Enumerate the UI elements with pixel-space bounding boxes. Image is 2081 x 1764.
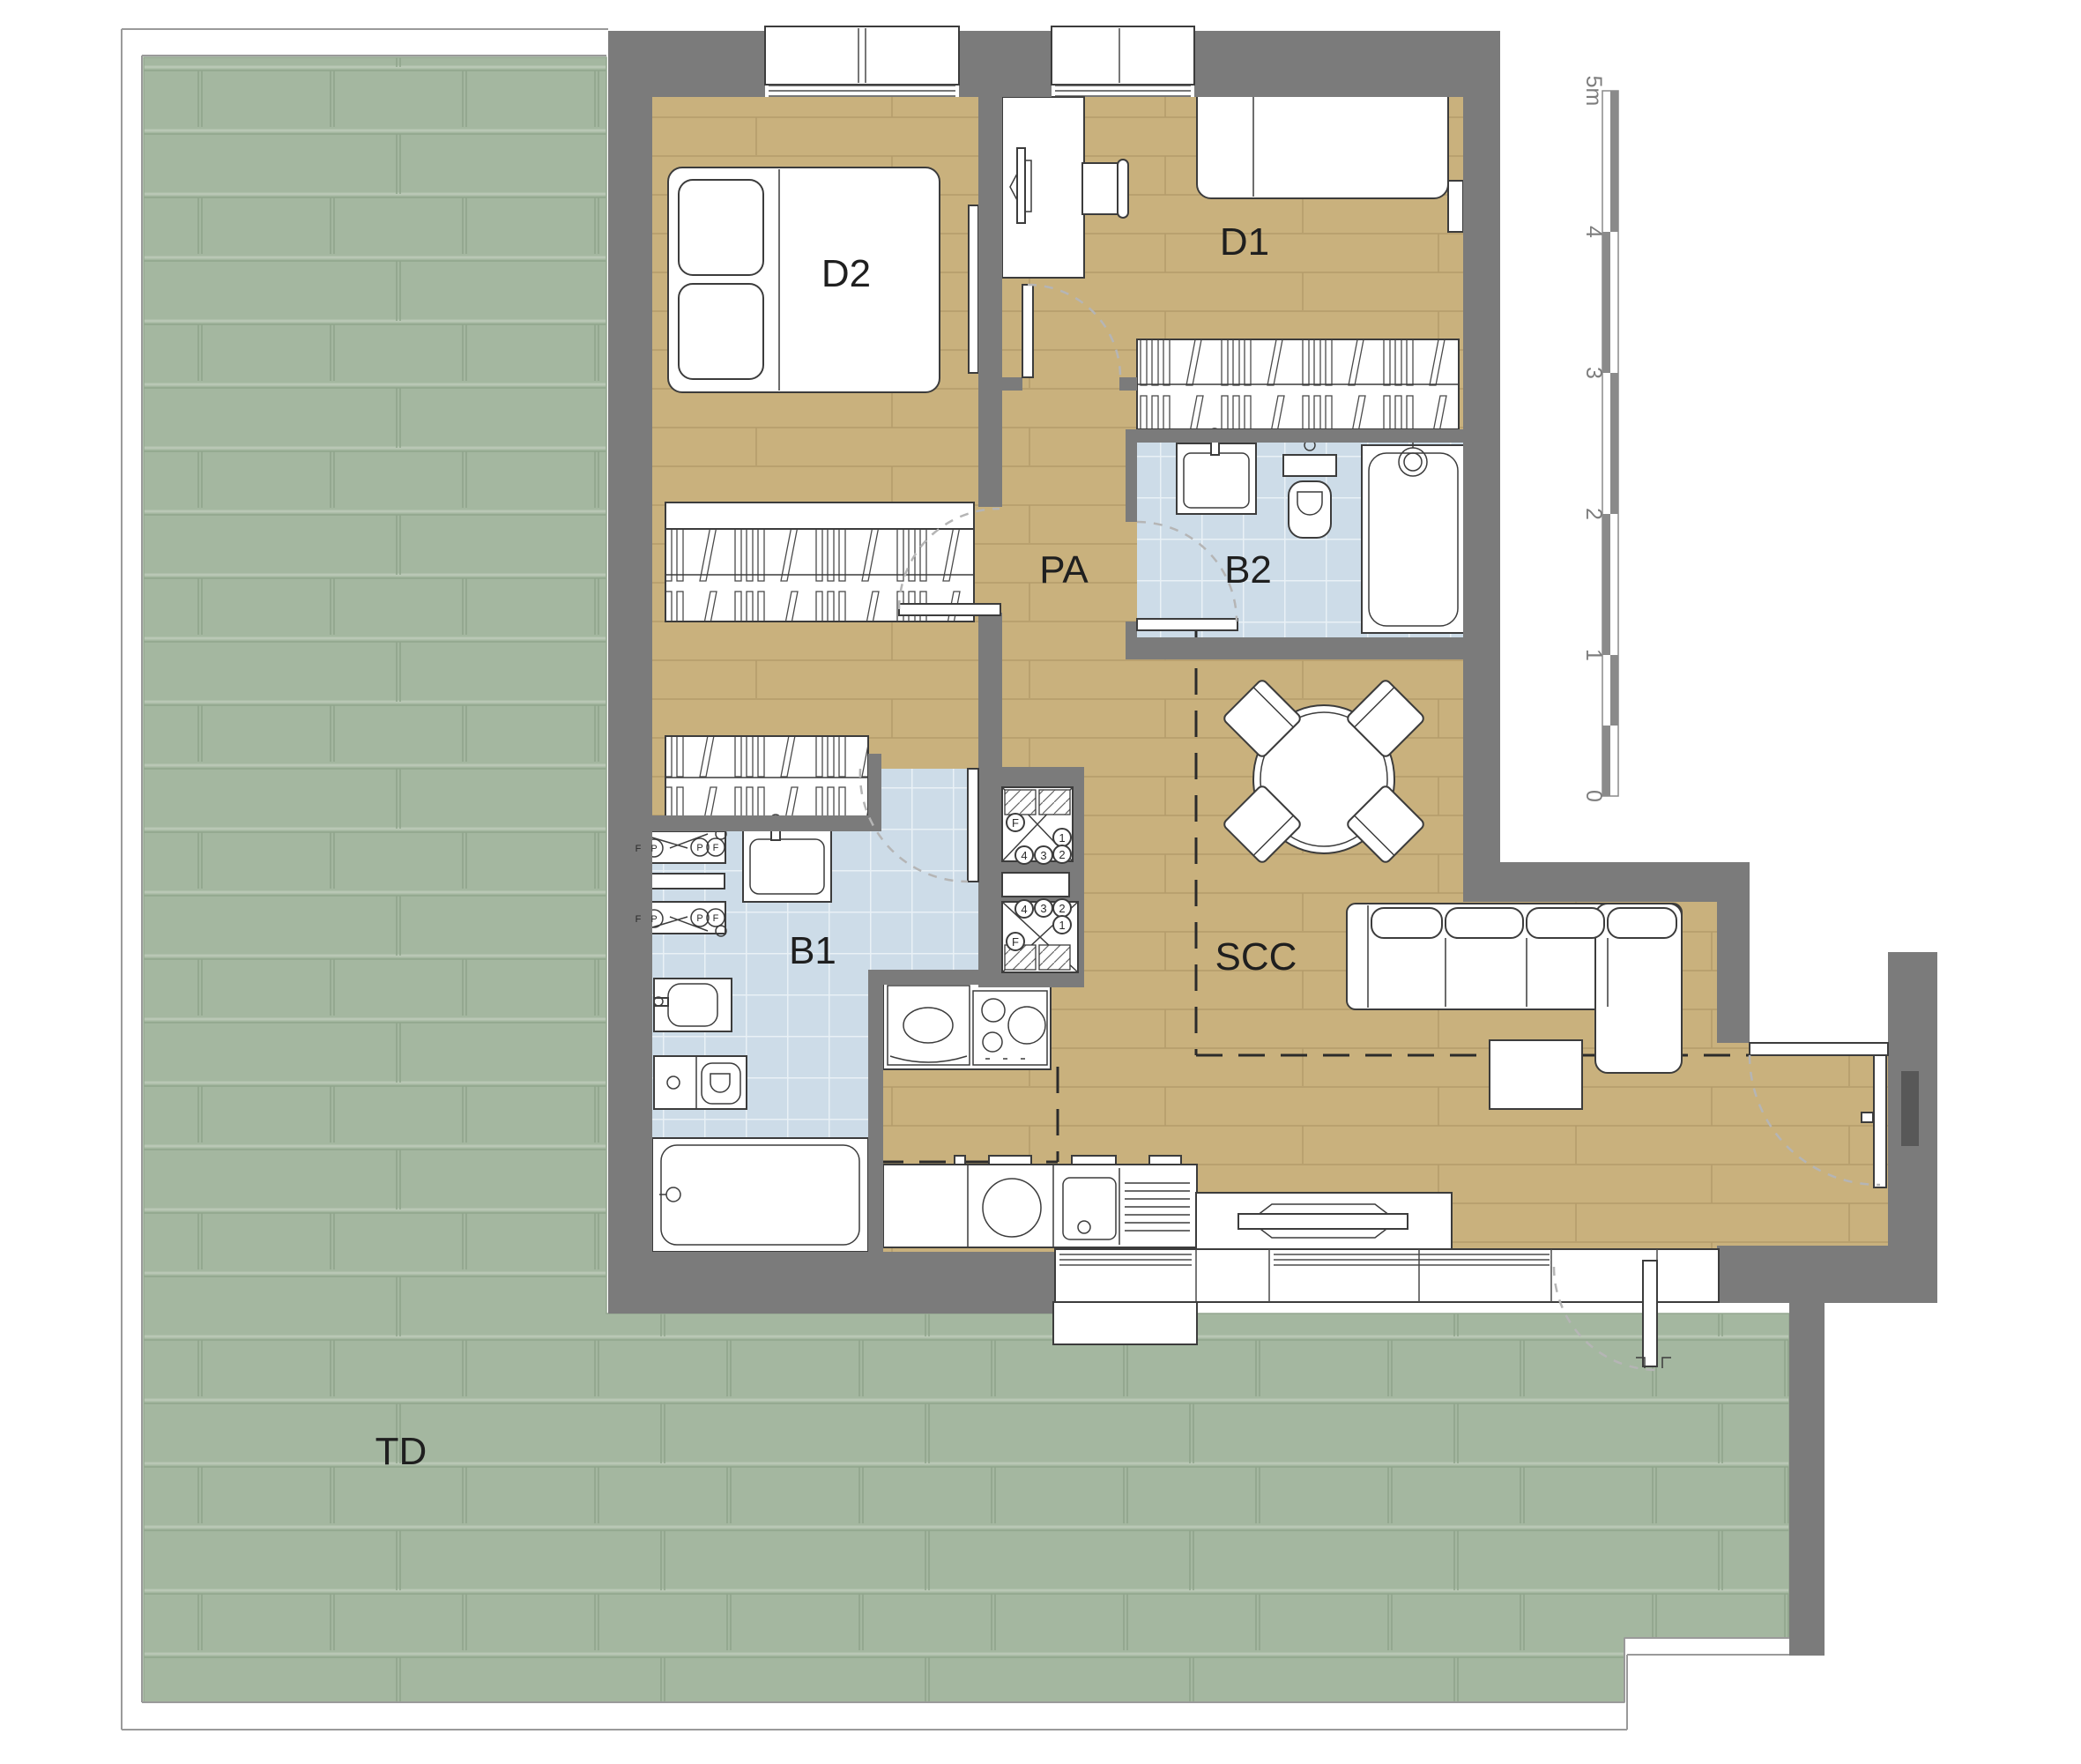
kitchen-counter-row (883, 1165, 1197, 1247)
laundry-shelf (650, 874, 725, 889)
wall-d1-south-right (1119, 377, 1137, 391)
svg-text:F: F (1012, 935, 1019, 949)
svg-text:4: 4 (1021, 903, 1027, 916)
cabinet-handle (1072, 1156, 1116, 1165)
svg-text:0: 0 (1581, 790, 1606, 802)
wall-divider-upper (978, 97, 1002, 507)
door-leaf-b2 (1137, 619, 1237, 630)
svg-text:3: 3 (1040, 849, 1046, 862)
bathtub-b1 (652, 1138, 868, 1252)
bathtub-b2 (1362, 445, 1465, 633)
svg-text:1: 1 (1059, 831, 1065, 845)
svg-text:1: 1 (1059, 919, 1065, 932)
wall-entry-south (1717, 1246, 1937, 1303)
wall-b1-east (868, 985, 883, 1252)
wall-top-right (1194, 31, 1500, 97)
wall-entry-west (1717, 902, 1750, 1043)
cabinet-handle (955, 1156, 965, 1165)
svg-text:F: F (713, 913, 719, 924)
shaft-shelf (1002, 873, 1069, 897)
wall-b2-west-upper (1126, 429, 1137, 522)
wall-b2-north (1126, 429, 1500, 443)
b2-toilet-cistern (1283, 455, 1336, 476)
b2-toilet-bowl (1289, 481, 1331, 538)
label-td: TD (375, 1430, 427, 1473)
single-bed (1197, 84, 1448, 198)
door-leaf-d2 (899, 604, 1000, 615)
wall-b2-west-lower (1126, 621, 1137, 637)
scale-bar: 5m 4 3 2 1 0 (1581, 76, 1618, 802)
wall-right-upper (1463, 97, 1500, 862)
door-leaf-d1 (1022, 285, 1033, 377)
label-d2: D2 (821, 252, 871, 295)
svg-text:P: P (650, 844, 657, 854)
svg-text:1: 1 (1581, 649, 1606, 661)
svg-text:4: 4 (1021, 849, 1027, 862)
cabinet-handle (1149, 1156, 1181, 1165)
sofa-back-cushion (1608, 908, 1676, 938)
monitor-screen (1017, 148, 1025, 223)
extendable-table-bar (1238, 1214, 1408, 1229)
wall-left (608, 31, 652, 1314)
svg-text:3: 3 (1040, 902, 1046, 915)
wall-step (1463, 862, 1750, 902)
svg-text:P: P (650, 914, 657, 925)
sofa-back-cushion (1527, 908, 1604, 938)
svg-text:P: P (696, 913, 702, 924)
label-b1: B1 (789, 929, 836, 972)
sofa-back-cushion (1371, 908, 1442, 938)
desk-chair-back (1118, 160, 1128, 218)
label-b2: B2 (1224, 548, 1272, 592)
desk (1002, 97, 1084, 278)
label-scc: SCC (1215, 935, 1297, 979)
pillow (679, 180, 763, 275)
svg-text:F: F (635, 844, 642, 854)
svg-text:F: F (635, 914, 642, 925)
wall-top-mid (959, 31, 1052, 97)
svg-text:2: 2 (1059, 848, 1065, 861)
front-door-leaf (1874, 1055, 1886, 1187)
shaft-hatch-cell (1039, 945, 1070, 970)
bath1-floor-ext (868, 769, 978, 985)
shaft-hatch-cell (1039, 790, 1070, 815)
svg-text:F: F (1012, 816, 1019, 830)
terrace-door-leaf (1643, 1261, 1657, 1366)
label-pa: PA (1039, 548, 1089, 592)
svg-text:3: 3 (1581, 367, 1606, 379)
wall-d2-b1 (652, 815, 873, 831)
entry-threshold (1750, 1043, 1888, 1055)
pillow (679, 284, 763, 379)
floorplan-canvas: D2 D1 PA B2 B1 SCC TD F 1 2 3 4 F 4 3 2 … (0, 0, 2081, 1764)
nightstand (1448, 181, 1463, 232)
cabinet-handle (989, 1156, 1031, 1165)
entry-niche (1901, 1071, 1919, 1146)
window-d2 (765, 26, 959, 85)
window-planter (1053, 1302, 1197, 1344)
wardrobe-shelf (665, 502, 974, 529)
wood-floor-entry (1717, 1043, 1888, 1246)
svg-text:2: 2 (1581, 508, 1606, 520)
label-d1: D1 (1220, 220, 1269, 264)
wall-d1-south-left (1002, 377, 1022, 391)
sofa-back-cushion (1446, 908, 1523, 938)
wall-b1-ext-south (868, 970, 978, 985)
door-leaf-b1 (968, 769, 978, 882)
svg-text:P: P (696, 843, 702, 853)
window-sill-south (1055, 1249, 1719, 1302)
coffee-table (1490, 1040, 1582, 1109)
wall-bottom-left (608, 1252, 1059, 1314)
mirror-panel (969, 205, 978, 373)
wall-terrace-east (1789, 1303, 1825, 1656)
front-door-handle (1862, 1113, 1873, 1122)
svg-text:5m: 5m (1581, 76, 1606, 107)
svg-text:F: F (713, 843, 719, 853)
shaft-hatch-cell (1005, 790, 1036, 815)
wall-b2-south (1126, 637, 1500, 659)
window-d1 (1052, 26, 1194, 85)
svg-text:4: 4 (1581, 226, 1606, 238)
svg-text:2: 2 (1059, 902, 1065, 915)
